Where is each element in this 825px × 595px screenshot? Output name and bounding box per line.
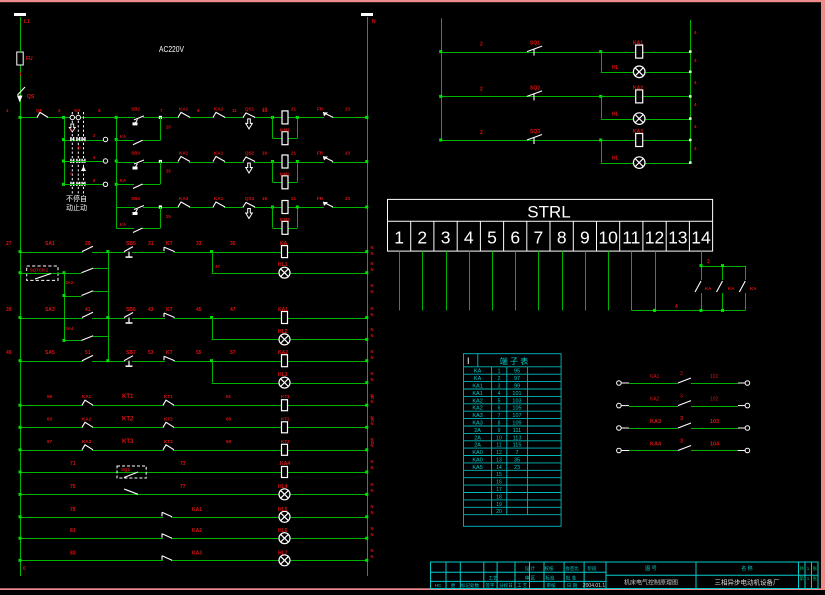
svg-text:KA4: KA4 xyxy=(650,442,662,448)
svg-text:63: 63 xyxy=(47,416,53,421)
svg-text:KA1: KA1 xyxy=(650,374,660,380)
svg-text:SB3: SB3 xyxy=(131,151,140,156)
svg-text:KA1: KA1 xyxy=(633,41,643,47)
svg-text:SA4: SA4 xyxy=(65,326,74,331)
svg-text:33: 33 xyxy=(196,241,202,247)
svg-text:61: 61 xyxy=(226,394,232,399)
svg-text:21: 21 xyxy=(291,106,297,111)
svg-text:111: 111 xyxy=(513,428,521,434)
svg-text:N: N xyxy=(371,289,374,294)
svg-text:4: 4 xyxy=(464,228,474,248)
svg-text:115: 115 xyxy=(513,443,522,449)
svg-text:SA2: SA2 xyxy=(65,280,74,285)
svg-text:3: 3 xyxy=(680,371,683,377)
svg-text:69: 69 xyxy=(226,439,232,444)
svg-text:KA1: KA1 xyxy=(214,151,224,156)
svg-text:KT1: KT1 xyxy=(164,394,173,399)
svg-text:KA0: KA0 xyxy=(472,457,482,463)
svg-text:2004.01.1: 2004.01.1 xyxy=(583,583,605,589)
svg-text:3: 3 xyxy=(498,384,501,390)
svg-text:KA2: KA2 xyxy=(179,151,189,156)
svg-text:83: 83 xyxy=(70,550,76,556)
svg-text:HL7: HL7 xyxy=(278,550,288,556)
svg-text:HL4: HL4 xyxy=(278,484,288,490)
svg-text:KA3: KA3 xyxy=(650,419,661,425)
svg-text:N: N xyxy=(371,510,374,515)
svg-text:11: 11 xyxy=(232,108,237,113)
svg-text:13: 13 xyxy=(668,228,687,248)
svg-text:N: N xyxy=(371,421,374,426)
svg-text:35: 35 xyxy=(514,457,520,463)
svg-text:101: 101 xyxy=(512,391,521,397)
svg-text:KA: KA xyxy=(280,241,288,247)
svg-text:65: 65 xyxy=(226,416,232,421)
svg-text:109: 109 xyxy=(512,421,521,427)
svg-text:51: 51 xyxy=(85,350,91,356)
svg-text:5: 5 xyxy=(98,108,101,113)
svg-text:47: 47 xyxy=(230,307,236,313)
svg-text:113: 113 xyxy=(513,435,522,441)
svg-text:N: N xyxy=(371,355,374,360)
svg-text:KA1: KA1 xyxy=(472,391,482,397)
svg-text:N: N xyxy=(371,371,374,376)
svg-text:KA2: KA2 xyxy=(633,85,643,91)
svg-text:FR: FR xyxy=(317,196,324,201)
svg-text:KA: KA xyxy=(750,286,757,291)
svg-text:QS: QS xyxy=(27,94,35,100)
svg-text:2: 2 xyxy=(480,42,483,48)
svg-text:工艺: 工艺 xyxy=(489,576,498,581)
svg-text:6: 6 xyxy=(510,228,520,248)
svg-text:N: N xyxy=(371,459,374,464)
svg-text:N: N xyxy=(371,532,374,537)
svg-text:KA: KA xyxy=(728,286,735,291)
svg-text:N: N xyxy=(371,548,374,553)
svg-text:53: 53 xyxy=(148,350,154,356)
svg-text:SB6: SB6 xyxy=(126,307,136,313)
svg-text:SB4: SB4 xyxy=(131,196,140,201)
svg-text:SQ1: SQ1 xyxy=(121,467,131,472)
svg-text:2: 2 xyxy=(498,376,501,382)
svg-text:8: 8 xyxy=(557,228,567,248)
svg-text:AC220V: AC220V xyxy=(159,44,184,54)
svg-text:工 艺: 工 艺 xyxy=(517,583,528,588)
svg-text:KA: KA xyxy=(120,222,126,227)
svg-text:12: 12 xyxy=(645,228,664,248)
svg-text:KA2: KA2 xyxy=(214,106,224,111)
svg-text:75: 75 xyxy=(70,484,76,490)
svg-text:3: 3 xyxy=(58,108,61,113)
svg-text:25: 25 xyxy=(166,214,171,219)
svg-text:KM3: KM3 xyxy=(280,217,290,222)
svg-text:43: 43 xyxy=(148,307,154,313)
svg-text:1: 1 xyxy=(19,72,22,78)
svg-text:99: 99 xyxy=(514,384,520,390)
svg-text:SA5: SA5 xyxy=(45,350,55,356)
svg-text:KA3: KA3 xyxy=(179,196,189,201)
svg-text:77: 77 xyxy=(180,484,186,490)
svg-text:QS1: QS1 xyxy=(245,106,255,111)
svg-text:2: 2 xyxy=(707,259,710,265)
svg-text:N: N xyxy=(371,349,374,354)
svg-text:7: 7 xyxy=(160,108,163,113)
svg-text:11: 11 xyxy=(622,228,640,248)
svg-text:KA1: KA1 xyxy=(214,196,224,201)
svg-text:HL: HL xyxy=(612,156,619,162)
svg-text:KA2: KA2 xyxy=(82,416,92,421)
svg-text:KA1: KA1 xyxy=(192,507,202,513)
svg-text:KA3: KA3 xyxy=(472,413,482,419)
svg-text:N: N xyxy=(371,526,374,531)
svg-text:FR: FR xyxy=(317,151,324,156)
svg-text:KA2: KA2 xyxy=(192,528,202,534)
svg-text:KA0: KA0 xyxy=(472,450,482,456)
svg-text:59: 59 xyxy=(47,394,53,399)
svg-text:张: 张 xyxy=(813,565,818,572)
svg-text:不停自: 不停自 xyxy=(66,194,87,203)
svg-text:SQ1: SQ1 xyxy=(530,41,540,47)
svg-text:N: N xyxy=(371,437,374,442)
svg-text:N: N xyxy=(371,465,374,470)
svg-text:3: 3 xyxy=(680,439,683,445)
svg-text:KA: KA xyxy=(705,286,712,291)
svg-text:N: N xyxy=(372,19,376,25)
svg-text:端 子 表: 端 子 表 xyxy=(500,356,528,366)
svg-text:KT2: KT2 xyxy=(281,416,290,421)
svg-text:23: 23 xyxy=(345,196,351,201)
svg-text:101: 101 xyxy=(710,374,719,380)
svg-text:KA1: KA1 xyxy=(278,307,288,313)
svg-text:SQ2: SQ2 xyxy=(530,85,540,91)
svg-text:11: 11 xyxy=(496,443,501,449)
svg-text:KA2: KA2 xyxy=(472,398,482,404)
svg-text:名 称: 名 称 xyxy=(741,565,752,572)
svg-text:103: 103 xyxy=(512,398,521,404)
svg-text:三相异步电动机设备厂: 三相异步电动机设备厂 xyxy=(715,578,781,587)
svg-text:设 计: 设 计 xyxy=(525,565,536,572)
svg-text:37: 37 xyxy=(215,264,221,269)
svg-text:N: N xyxy=(371,283,374,288)
svg-text:KA2: KA2 xyxy=(472,406,482,412)
svg-text:67: 67 xyxy=(47,439,53,444)
svg-text:分权日: 分权日 xyxy=(499,582,513,589)
svg-text:KA1: KA1 xyxy=(179,106,189,111)
svg-text:13: 13 xyxy=(496,457,502,463)
svg-text:25: 25 xyxy=(166,169,171,174)
svg-text:KT2: KT2 xyxy=(122,416,134,422)
svg-text:7: 7 xyxy=(515,450,518,456)
svg-text:N: N xyxy=(371,377,374,382)
svg-text:KA2: KA2 xyxy=(278,350,288,356)
svg-text:6: 6 xyxy=(498,406,501,412)
svg-text:图 号: 图 号 xyxy=(645,566,656,572)
svg-text:23: 23 xyxy=(514,465,520,471)
svg-text:HL2: HL2 xyxy=(278,329,288,335)
svg-text:SQ3: SQ3 xyxy=(530,129,540,135)
svg-text:KA5: KA5 xyxy=(472,465,482,471)
svg-text:27: 27 xyxy=(6,241,12,247)
svg-text:18: 18 xyxy=(496,494,502,500)
svg-text:15: 15 xyxy=(496,472,502,478)
svg-text:N: N xyxy=(371,261,374,266)
svg-text:102: 102 xyxy=(710,397,719,403)
svg-text:55: 55 xyxy=(196,350,202,356)
svg-text:25: 25 xyxy=(166,124,171,129)
svg-text:71: 71 xyxy=(70,461,76,467)
svg-text:KT: KT xyxy=(166,241,173,247)
svg-text:阶段: 阶段 xyxy=(588,565,597,572)
svg-text:批 准: 批 准 xyxy=(566,575,577,582)
svg-text:SB5: SB5 xyxy=(126,241,136,247)
svg-text:73: 73 xyxy=(180,461,186,467)
svg-text:14: 14 xyxy=(496,465,502,471)
svg-text:N: N xyxy=(371,245,374,250)
svg-text:KA1: KA1 xyxy=(82,394,92,399)
svg-text:103: 103 xyxy=(710,419,719,425)
svg-text:9: 9 xyxy=(498,428,501,434)
svg-text:KT: KT xyxy=(166,307,173,313)
svg-text:I: I xyxy=(467,356,470,366)
svg-text:标准: 标准 xyxy=(546,575,555,582)
svg-text:N: N xyxy=(371,393,374,398)
svg-text:23: 23 xyxy=(345,151,351,156)
svg-text:19: 19 xyxy=(262,151,268,156)
svg-text:QF: QF xyxy=(36,108,43,113)
svg-text:39: 39 xyxy=(6,307,12,313)
svg-text:N: N xyxy=(371,333,374,338)
svg-text:KT: KT xyxy=(166,350,173,356)
svg-text:N: N xyxy=(371,554,374,559)
svg-text:第: 第 xyxy=(800,575,805,582)
svg-text:9: 9 xyxy=(197,108,200,113)
svg-text:19: 19 xyxy=(262,106,268,111)
svg-text:107: 107 xyxy=(512,413,521,419)
svg-text:KA2: KA2 xyxy=(650,397,660,403)
svg-text:KA: KA xyxy=(120,178,126,183)
svg-text:N: N xyxy=(371,443,374,448)
svg-text:95: 95 xyxy=(514,369,520,375)
svg-text:19: 19 xyxy=(262,196,268,201)
svg-text:29: 29 xyxy=(85,241,91,247)
svg-text:KA3: KA3 xyxy=(192,550,202,556)
svg-text:N: N xyxy=(371,267,374,272)
svg-text:机床电气控制原理图: 机床电气控制原理图 xyxy=(624,579,678,587)
svg-text:14: 14 xyxy=(691,228,711,248)
svg-text:HL6: HL6 xyxy=(278,528,288,534)
svg-text:7: 7 xyxy=(534,228,544,248)
svg-text:FU: FU xyxy=(26,56,33,62)
svg-text:共: 共 xyxy=(800,565,805,572)
svg-text:HC: HC xyxy=(435,583,442,588)
svg-text:KT2: KT2 xyxy=(164,416,173,421)
svg-text:49: 49 xyxy=(6,350,12,356)
svg-text:审 区: 审 区 xyxy=(525,575,536,582)
svg-text:会签比: 会签比 xyxy=(565,565,579,572)
svg-text:N: N xyxy=(371,251,374,256)
svg-text:21: 21 xyxy=(291,151,297,156)
svg-text:N: N xyxy=(371,504,374,509)
svg-text:1: 1 xyxy=(6,108,9,113)
svg-text:KA: KA xyxy=(474,369,482,375)
svg-text:1: 1 xyxy=(498,369,501,375)
svg-text:N: N xyxy=(371,312,374,317)
svg-text:19: 19 xyxy=(496,502,502,508)
svg-text:35: 35 xyxy=(230,241,236,247)
svg-text:KA1: KA1 xyxy=(472,384,482,390)
svg-text:KT3: KT3 xyxy=(122,439,134,445)
svg-text:QS2: QS2 xyxy=(245,151,255,156)
svg-text:20: 20 xyxy=(496,509,502,515)
svg-text:N: N xyxy=(371,327,374,332)
svg-text:HL: HL xyxy=(612,65,619,71)
svg-text:5: 5 xyxy=(487,228,497,248)
svg-text:3: 3 xyxy=(441,228,451,248)
svg-text:0: 0 xyxy=(23,566,26,572)
svg-text:SA3: SA3 xyxy=(45,307,55,313)
svg-text:KT1: KT1 xyxy=(122,394,134,400)
svg-text:标记处数: 标记处数 xyxy=(461,582,479,589)
svg-text:SB7: SB7 xyxy=(126,350,136,356)
svg-text:SQTCH 1: SQTCH 1 xyxy=(30,268,49,273)
svg-text:2A: 2A xyxy=(474,435,481,441)
svg-text:KT1: KT1 xyxy=(281,394,290,399)
svg-text:12: 12 xyxy=(496,450,502,456)
svg-text:8: 8 xyxy=(498,421,501,427)
svg-text:21: 21 xyxy=(291,196,297,201)
svg-text:KA3: KA3 xyxy=(82,439,92,444)
svg-text:2: 2 xyxy=(417,228,427,248)
svg-text:81: 81 xyxy=(70,528,76,534)
svg-text:7: 7 xyxy=(498,413,501,419)
svg-text:KT3: KT3 xyxy=(164,439,173,444)
svg-text:10: 10 xyxy=(598,228,618,248)
svg-text:31: 31 xyxy=(148,241,154,247)
svg-text:3: 3 xyxy=(680,394,683,400)
svg-text:97: 97 xyxy=(514,376,520,382)
svg-text:HL1: HL1 xyxy=(278,262,288,268)
svg-text:4: 4 xyxy=(498,391,501,397)
svg-text:KM1: KM1 xyxy=(280,127,290,132)
svg-text:16: 16 xyxy=(496,480,502,486)
svg-text:10: 10 xyxy=(496,435,502,441)
svg-text:N: N xyxy=(371,488,374,493)
svg-text:QS3: QS3 xyxy=(245,196,255,201)
svg-text:KT3: KT3 xyxy=(281,439,290,444)
svg-text:KA: KA xyxy=(474,376,482,382)
svg-text:5: 5 xyxy=(498,398,501,404)
svg-text:2A: 2A xyxy=(474,443,481,449)
svg-text:HL5: HL5 xyxy=(278,507,288,513)
svg-text:2: 2 xyxy=(480,130,483,136)
svg-text:2A: 2A xyxy=(474,428,481,434)
svg-text:45: 45 xyxy=(196,307,202,313)
svg-text:N: N xyxy=(371,306,374,311)
svg-text:KM2: KM2 xyxy=(280,172,290,177)
svg-text:N: N xyxy=(371,482,374,487)
svg-text:KA3: KA3 xyxy=(633,129,643,135)
svg-text:b: b xyxy=(78,145,81,150)
svg-text:SA: SA xyxy=(74,108,81,113)
svg-text:STRL: STRL xyxy=(527,203,570,222)
svg-text:L1: L1 xyxy=(24,19,30,25)
svg-text:HL3: HL3 xyxy=(278,372,288,378)
svg-text:SA1: SA1 xyxy=(45,241,55,247)
svg-text:N: N xyxy=(371,399,374,404)
svg-text:105: 105 xyxy=(512,406,521,412)
svg-text:N: N xyxy=(371,415,374,420)
svg-text:1: 1 xyxy=(394,228,404,248)
svg-text:HL: HL xyxy=(612,112,619,118)
svg-text:张: 张 xyxy=(813,575,818,582)
svg-text:KA3: KA3 xyxy=(472,421,482,427)
svg-text:3: 3 xyxy=(680,416,683,422)
svg-text:41: 41 xyxy=(85,307,91,313)
svg-text:2: 2 xyxy=(480,86,483,92)
svg-text:FR: FR xyxy=(317,106,324,111)
svg-text:签字: 签字 xyxy=(486,582,495,588)
svg-text:23: 23 xyxy=(345,106,351,111)
svg-text:KA: KA xyxy=(120,134,126,139)
svg-text:审核: 审核 xyxy=(547,582,556,589)
svg-text:动止动: 动止动 xyxy=(66,203,87,212)
svg-text:9: 9 xyxy=(580,228,590,248)
svg-text:17: 17 xyxy=(496,487,502,493)
svg-text:79: 79 xyxy=(70,507,76,513)
svg-text:57: 57 xyxy=(230,350,236,356)
svg-text:校核: 校核 xyxy=(545,565,554,572)
svg-text:SB2: SB2 xyxy=(131,106,140,111)
svg-text:4: 4 xyxy=(675,304,678,310)
svg-text:104: 104 xyxy=(710,442,720,448)
